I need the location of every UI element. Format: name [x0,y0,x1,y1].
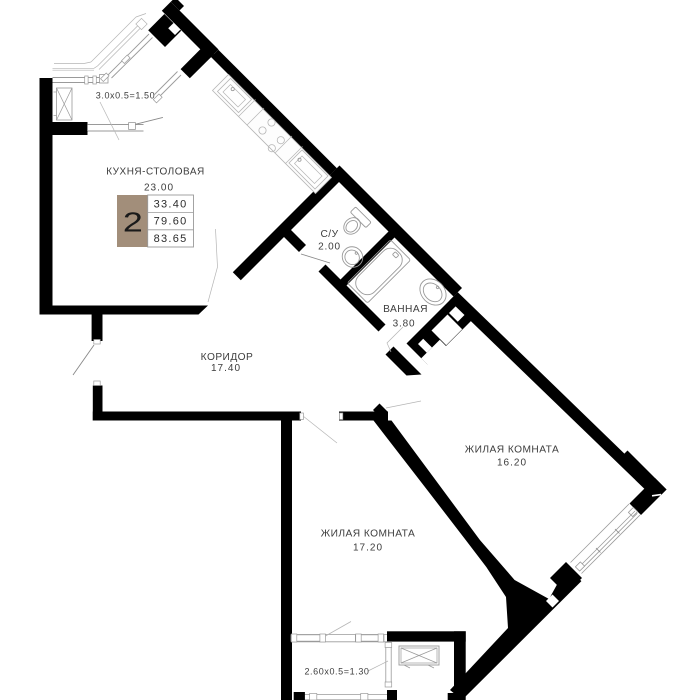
svg-text:16.20: 16.20 [497,458,527,469]
svg-text:КОРИДОР: КОРИДОР [201,352,254,363]
svg-text:23.00: 23.00 [144,183,174,194]
svg-text:83.65: 83.65 [154,233,188,245]
svg-text:2: 2 [123,206,143,237]
svg-text:17.40: 17.40 [211,363,241,374]
svg-text:С/У: С/У [320,229,338,240]
svg-text:ВАННАЯ: ВАННАЯ [383,304,428,315]
svg-text:79.60: 79.60 [154,216,188,228]
svg-text:3.80: 3.80 [393,319,416,330]
svg-text:КУХНЯ-СТОЛОВАЯ: КУХНЯ-СТОЛОВАЯ [106,167,205,178]
svg-text:3.0x0.5=1.50: 3.0x0.5=1.50 [96,91,156,101]
svg-text:2.60x0.5=1.30: 2.60x0.5=1.30 [304,667,369,677]
svg-text:ЖИЛАЯ КОМНАТА: ЖИЛАЯ КОМНАТА [465,444,560,455]
svg-text:17.20: 17.20 [353,543,383,554]
svg-text:33.40: 33.40 [154,199,188,211]
svg-text:2.00: 2.00 [318,242,341,253]
svg-text:ЖИЛАЯ КОМНАТА: ЖИЛАЯ КОМНАТА [321,529,416,540]
